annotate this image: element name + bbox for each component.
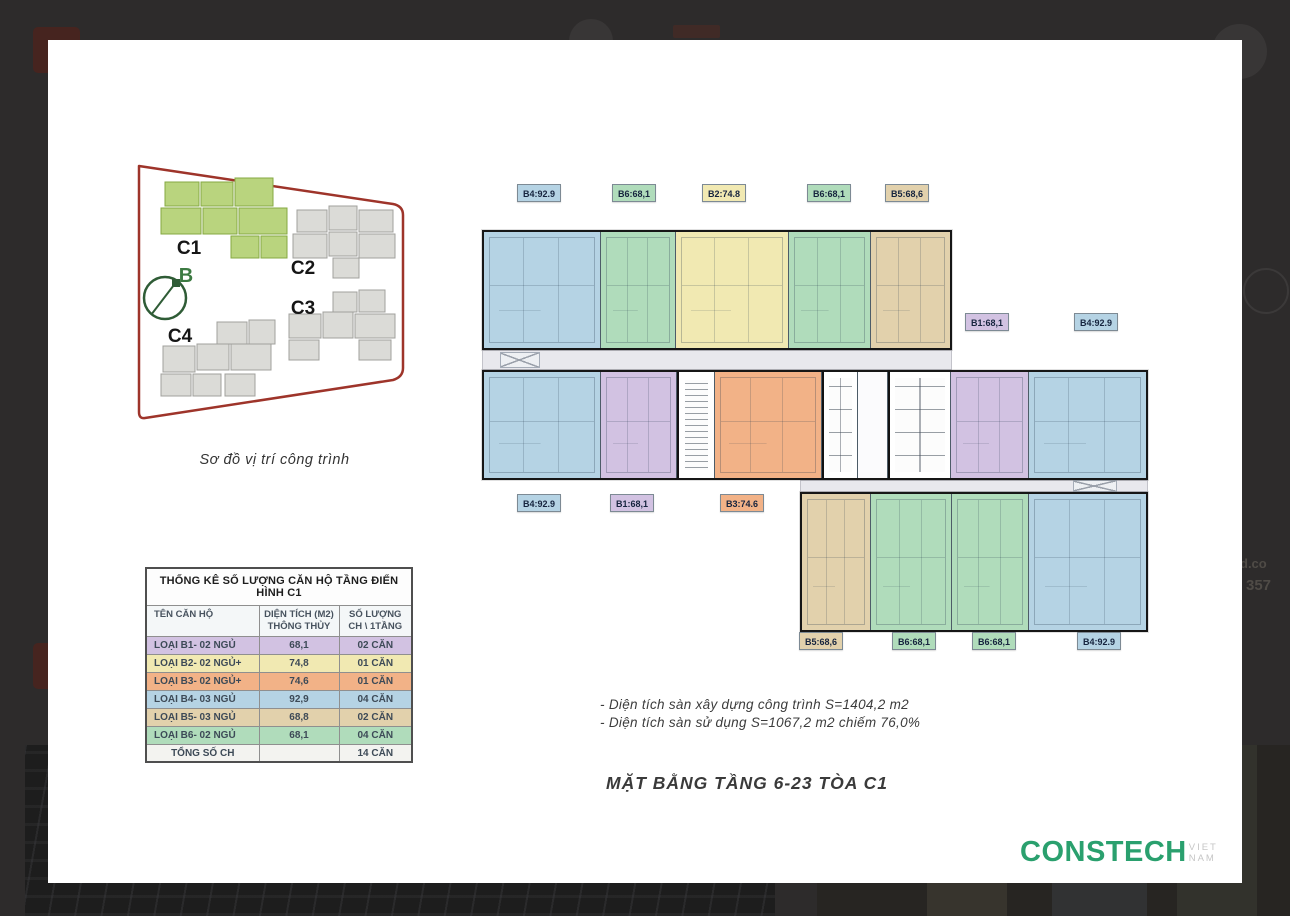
dimmed-watermark-text: d.co xyxy=(1240,556,1267,571)
unit-label-chip: B4:92.9 xyxy=(517,184,561,202)
unit-label-chip: B4:92.9 xyxy=(1074,313,1118,331)
floorplan-middle-wing xyxy=(482,370,1148,480)
note-line-2: - Diện tích sàn sử dụng S=1067,2 m2 chiế… xyxy=(600,714,920,732)
unit-label-chip: B4:92.9 xyxy=(1077,632,1121,650)
page: d.co 357 xyxy=(0,0,1290,916)
unit-label-chip: B6:68,1 xyxy=(972,632,1016,650)
unit-label-chip: B1:68,1 xyxy=(610,494,654,512)
apartment-unit-b6 xyxy=(952,494,1029,630)
apartment-unit-b1 xyxy=(601,372,677,478)
stair-core xyxy=(677,372,715,478)
unit-label-chip: B5:68,6 xyxy=(885,184,929,202)
unit-label-chip: B6:68,1 xyxy=(807,184,851,202)
logo-text: CONSTECH xyxy=(1020,836,1187,868)
apartment-unit-b4 xyxy=(1029,494,1146,630)
apartment-unit-b4 xyxy=(484,232,601,348)
apartment-unit-b6 xyxy=(601,232,676,348)
apartment-unit-b6 xyxy=(789,232,870,348)
unit-label-chip: B6:68,1 xyxy=(612,184,656,202)
elevator-core xyxy=(822,372,858,478)
note-line-1: - Diện tích sàn xây dựng công trình S=14… xyxy=(600,696,920,714)
apartment-unit-b4 xyxy=(1029,372,1146,478)
elevator-stair-core xyxy=(888,372,952,478)
apartment-unit-b6 xyxy=(871,494,952,630)
floorplan-top-wing xyxy=(482,230,952,350)
unit-label-chip: B3:74.6 xyxy=(720,494,764,512)
floorplan: B4:92.9B6:68,1B2:74.8B6:68,1B5:68,6B1:68… xyxy=(48,40,1242,883)
corridor-cross-mark-left xyxy=(500,352,540,368)
logo-suffix: VIET NAM xyxy=(1187,842,1242,868)
corridor-upper xyxy=(482,350,952,370)
dimmed-search-icon xyxy=(1243,268,1289,314)
dimmed-red-bar xyxy=(673,25,720,38)
unit-label-chip: B6:68,1 xyxy=(892,632,936,650)
plan-title: MẶT BẰNG TẦNG 6-23 TÒA C1 xyxy=(606,773,888,794)
floorplan-bottom-wing xyxy=(800,492,1148,632)
apartment-unit-b5 xyxy=(802,494,871,630)
unit-label-chip: B1:68,1 xyxy=(965,313,1009,331)
apartment-unit-b1 xyxy=(951,372,1029,478)
lobby xyxy=(858,372,888,478)
unit-label-chip: B2:74.8 xyxy=(702,184,746,202)
unit-label-chip: B4:92.9 xyxy=(517,494,561,512)
apartment-unit-b5 xyxy=(871,232,950,348)
corridor-cross-mark-right xyxy=(1073,480,1117,492)
apartment-unit-b3 xyxy=(715,372,822,478)
apartment-unit-b2 xyxy=(676,232,789,348)
constech-logo: CONSTECH VIET NAM xyxy=(1020,836,1242,868)
apartment-unit-b4 xyxy=(484,372,601,478)
area-notes: - Diện tích sàn xây dựng công trình S=14… xyxy=(600,696,920,732)
dimmed-phone-fragment: 357 xyxy=(1246,577,1271,594)
unit-label-chip: B5:68,6 xyxy=(799,632,843,650)
lightbox-image[interactable]: C1 C2 C3 C4 B Sơ đồ vị trí công trình TH… xyxy=(48,40,1242,883)
